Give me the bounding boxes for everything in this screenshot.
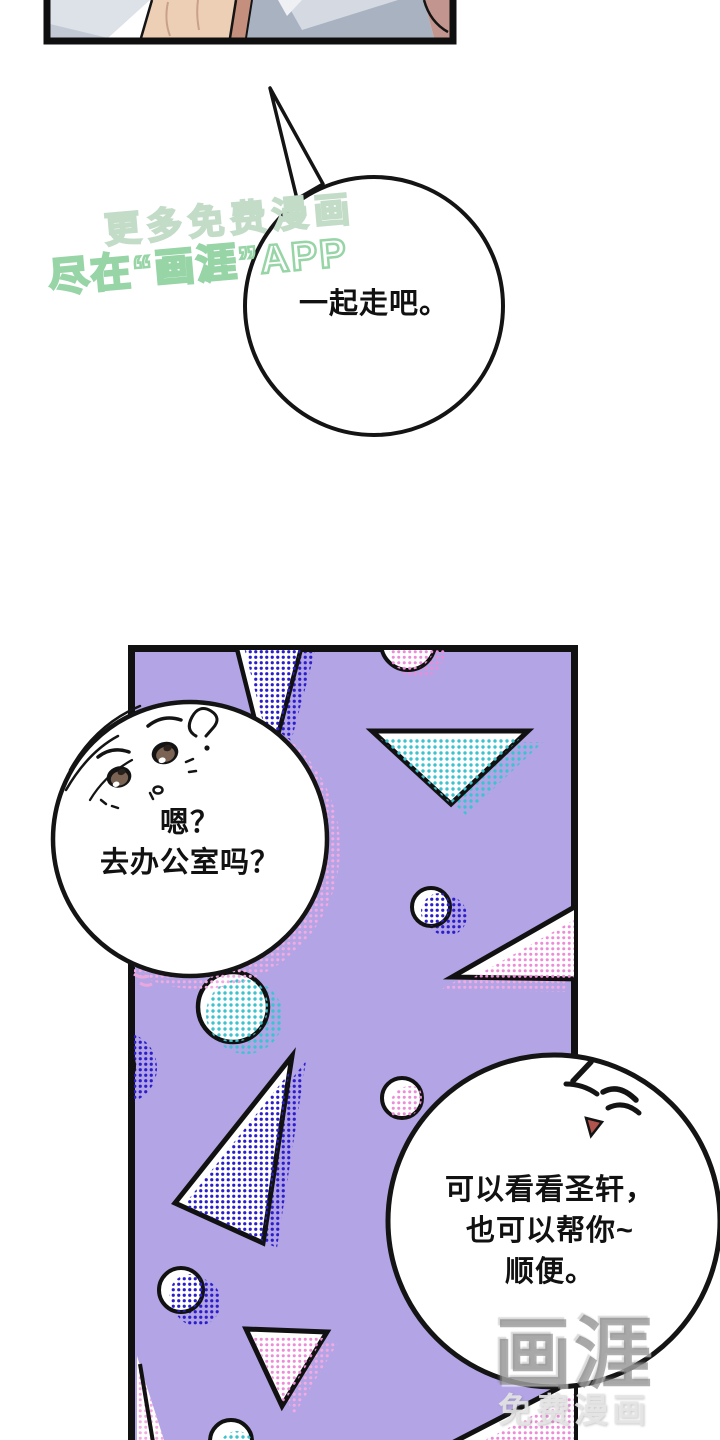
top-panel — [47, 0, 453, 41]
halftone-circle-left-edge — [85, 1032, 157, 1104]
comic-page: 一起走吧。 嗯？ 去办公室吗？ 可以看看圣轩， 也可以帮你~ 顺便。 更多免费漫… — [0, 0, 720, 1440]
speech-line: 去办公室吗？ — [62, 843, 318, 883]
speech-text-top: 一起走吧。 — [254, 284, 494, 324]
top-panel-artwork — [50, 0, 450, 38]
speech-line: 一起走吧。 — [299, 288, 449, 320]
speech-line: 也可以帮你~ — [400, 1211, 700, 1252]
speech-line: 顺便。 — [400, 1252, 700, 1293]
speech-text-left: 嗯？ 去办公室吗？ — [62, 803, 318, 883]
speech-line: 可以看看圣轩， — [400, 1170, 700, 1211]
speech-line: 嗯？ — [62, 803, 318, 843]
watermark-app-caption: 免费漫画 — [498, 1383, 650, 1432]
speech-text-right: 可以看看圣轩， 也可以帮你~ 顺便。 — [400, 1170, 700, 1293]
